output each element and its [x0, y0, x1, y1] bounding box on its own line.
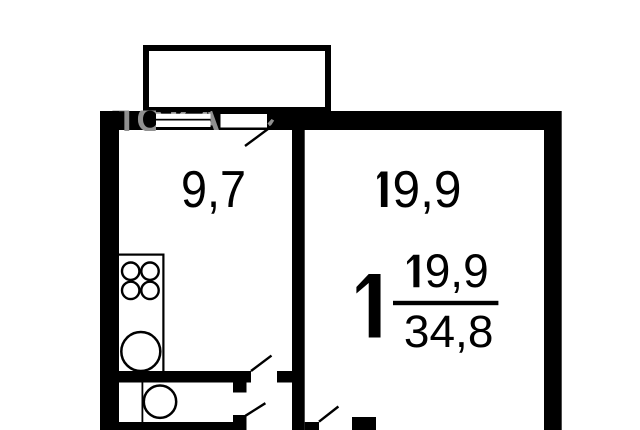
svg-text:9,9: 9,9	[425, 245, 489, 298]
svg-text:9,9: 9,9	[393, 161, 462, 219]
svg-text:34,8: 34,8	[404, 306, 494, 357]
svg-text:9,7: 9,7	[181, 161, 246, 219]
